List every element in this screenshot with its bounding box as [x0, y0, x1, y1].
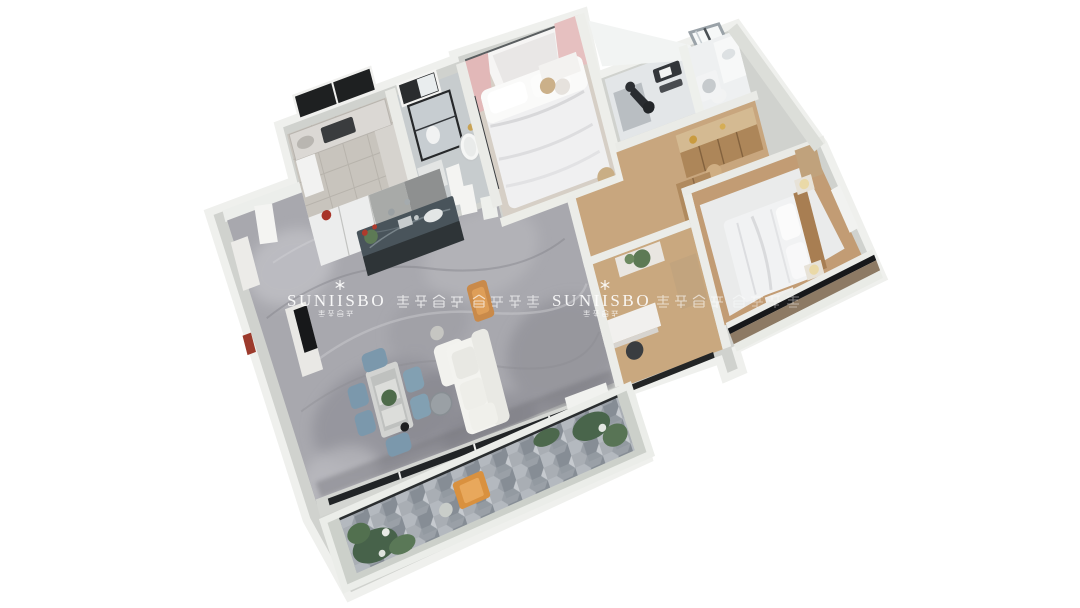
svg-text:SUNIISBO: SUNIISBO — [552, 291, 651, 310]
svg-text:SUNIISBO: SUNIISBO — [287, 291, 386, 310]
